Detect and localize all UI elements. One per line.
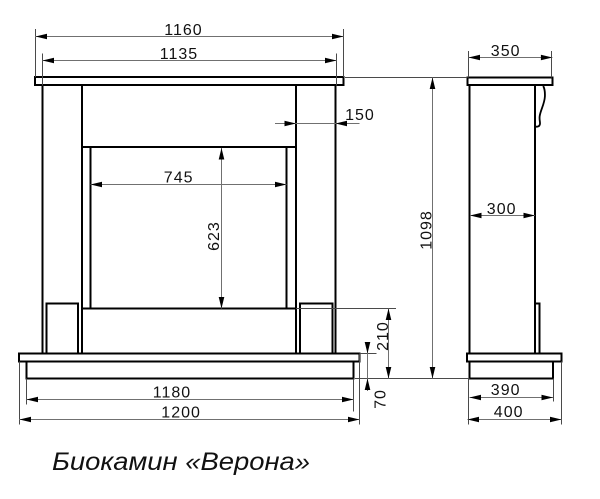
svg-text:623: 623 (206, 221, 223, 251)
svg-text:70: 70 (373, 389, 390, 409)
svg-text:1098: 1098 (419, 210, 436, 250)
svg-text:1200: 1200 (161, 405, 201, 422)
svg-text:1160: 1160 (164, 22, 202, 39)
svg-text:390: 390 (491, 382, 521, 399)
svg-text:350: 350 (491, 43, 521, 60)
svg-text:745: 745 (164, 170, 194, 187)
svg-text:150: 150 (345, 107, 375, 124)
svg-text:1180: 1180 (153, 385, 191, 402)
svg-text:1135: 1135 (160, 46, 198, 63)
svg-text:Биокамин «Верона»: Биокамин «Верона» (52, 448, 310, 476)
svg-text:300: 300 (487, 201, 517, 218)
svg-text:400: 400 (494, 404, 524, 421)
svg-text:210: 210 (375, 321, 392, 351)
